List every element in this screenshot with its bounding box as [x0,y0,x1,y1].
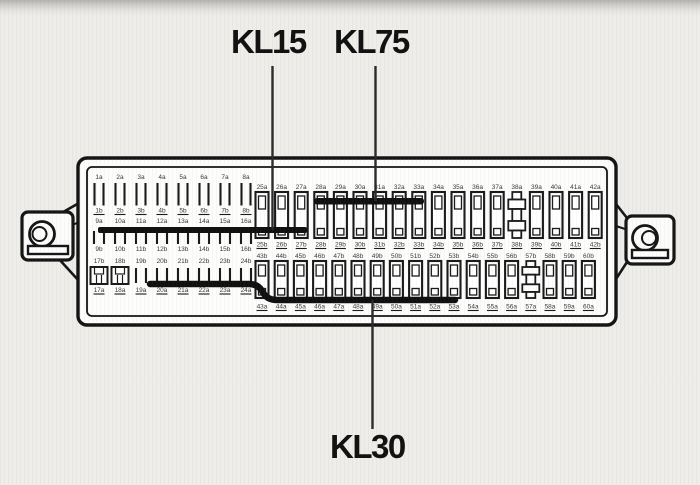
fuse-slot-label: 22a [199,287,210,294]
fuse-window [533,196,540,209]
fuse-window [335,265,342,276]
fuse-slot-label: 46b [314,253,325,260]
fuse-slot-label: 37b [492,242,503,249]
fuse-slot-label: 60a [583,304,594,311]
fuse-slot-label: 53a [449,304,460,311]
fuse-slot-label: 24a [241,287,252,294]
fuse-slot-label: 60b [583,253,594,260]
fuse-slot-label: 29b [335,242,346,249]
fuse-slot-label: 11a [136,218,147,225]
fuse-foot [566,289,573,296]
fuse-slot-label: 55b [487,253,498,260]
fuse-slot-label: 51a [410,304,421,311]
fuse-window [316,265,323,276]
fuse-slot-label: 5b [179,208,187,215]
fuse-window [592,196,599,209]
relay-socket-segment [512,192,521,200]
left-mounting-bracket [22,203,79,281]
fuse-slot-label: 43a [257,304,268,311]
fuse-slot-label: 44b [276,253,287,260]
fuse-foot [316,289,323,296]
fuse-window [435,196,442,209]
fuse-window [451,265,458,276]
fuse-window [259,265,266,276]
kl75-bus-bar [314,198,424,205]
fuse-window [455,196,462,209]
fuse-foot [572,229,579,236]
fuse-slot-label: 4b [158,208,166,215]
fuse-slot-label: 14b [199,246,210,253]
fuse-slot-label: 59a [564,304,575,311]
relay-socket-segment [508,200,525,210]
relay-socket-segment [508,221,525,231]
fuse-foot [376,229,383,236]
fuse-slot-label: 18b [115,258,126,265]
fuse-foot [474,229,481,236]
fuse-slot-label: 58a [545,304,556,311]
fuse-slot-label: 22b [199,258,210,265]
fuse-slot-label: 25a [257,184,268,191]
fuse-slot-label: 6a [200,174,208,181]
fuse-slot-label: 11b [136,246,147,253]
fuse-window [259,196,266,209]
fuse-box-diagram-page: KL15 KL75 KL30 1a2a3a4a5a6a7a8a1b2b3 [0,0,700,485]
fuse-window [508,265,515,276]
fuse-slot-label: 5a [179,174,187,181]
fuse-window [553,196,560,209]
fuse-window [278,265,285,276]
fuse-slot-label: 14a [199,218,210,225]
fuse-slot-label: 36b [472,242,483,249]
relay-socket-segment [522,284,539,292]
fuse-window [470,265,477,276]
fuse-slot-label: 27b [296,242,307,249]
fuse-slot-label: 9b [95,246,103,253]
fuse-window [412,265,419,276]
fuse-slot-label: 21b [178,258,189,265]
fuse-window [278,196,285,209]
relay-socket-segment [512,209,521,221]
fuse-slot-label: 54a [468,304,479,311]
relay-socket-segment [526,275,535,285]
fuse-slot-label: 34b [433,242,444,249]
fuse-slot-label: 15a [220,218,231,225]
fuse-slot-label: 45a [295,304,306,311]
fuse-slot-label: 58b [545,253,556,260]
fuse-slot-label: 10b [115,246,126,253]
fuse-slot-label: 48b [353,253,364,260]
fuse-foot [547,289,554,296]
fuse-window [297,265,304,276]
kl15-bus-bar [98,227,307,233]
fuse-slot-label: 32a [394,184,405,191]
fuse-foot [494,229,501,236]
fuse-slot-label: 36a [472,184,483,191]
fuse-slot-label: 33b [413,242,424,249]
fuse-foot [508,289,515,296]
fuse-foot [435,229,442,236]
fuse-slot-label: 50b [391,253,402,260]
fuse-window [494,196,501,209]
fuse-foot [470,289,477,296]
bracket-slot [632,250,668,258]
fuse-slot-label: 56b [506,253,517,260]
fuse-foot [396,229,403,236]
fuse-slot-label: 12a [157,218,168,225]
fuse-slot-label: 39b [531,242,542,249]
fuse-slot-label: 41b [570,242,581,249]
fuse-slot-label: 15b [220,246,231,253]
relay-socket-segment [526,261,535,267]
fuse-slot-label: 46a [314,304,325,311]
fuse-slot-label: 16a [241,218,252,225]
fuse-slot-label: 13a [178,218,189,225]
fuse-slot-label: 1a [95,174,103,181]
fuse-window [355,265,362,276]
terminal-label-kl30: KL30 [330,430,405,463]
fuse-slot-label: 30b [355,242,366,249]
fuse-slot-label: 37a [492,184,503,191]
fuse-box-diagram: 1a2a3a4a5a6a7a8a1b2b3b4b5b6b7b8b9a10a11a… [0,0,700,485]
terminal-label-kl75: KL75 [334,25,409,58]
fuse-slot-label: 9a [95,218,103,225]
fuse-slot-label: 44a [276,304,287,311]
fuse-slot-label: 31b [374,242,385,249]
terminal-label-kl15: KL15 [231,25,306,58]
fuse-foot [489,289,496,296]
relay-socket-segment [522,267,539,275]
fuse-slot-label: 43b [257,253,268,260]
relay-socket-segment [526,292,535,298]
fuse-slot-label: 25b [257,242,268,249]
fuse-window [374,265,381,276]
fuse-slot-label: 13b [178,246,189,253]
fuse-slot-label: 23b [220,258,231,265]
fuse-foot [412,289,419,296]
fuse-slot-label: 42b [590,242,601,249]
fuse-slot-label: 23a [220,287,231,294]
fuse-foot [451,289,458,296]
fuse-slot-label: 10a [115,218,126,225]
fuse-slot-label: 52b [429,253,440,260]
fuse-slot-label: 59b [564,253,575,260]
fuse-slot-label: 18a [115,287,126,294]
fuse-window [489,265,496,276]
fuse-slot-label: 19a [136,287,147,294]
fuse-slot-label: 28a [315,184,326,191]
fuse-slot-label: 12b [157,246,168,253]
fuse-slot-label: 53b [449,253,460,260]
fuse-window [566,265,573,276]
fuse-slot-label: 57a [525,304,536,311]
fuse-slot-label: 1b [95,208,103,215]
relay-socket-segment [512,231,521,239]
fuse-slot-label: 7a [221,174,229,181]
fuse-foot [317,229,324,236]
fuse-slot-label: 38a [511,184,522,191]
fuse-slot-label: 8b [242,208,250,215]
fuse-slot-label: 20a [157,287,168,294]
fuse-foot [533,229,540,236]
fuse-slot-label: 21a [178,287,189,294]
fuse-foot [374,289,381,296]
fuse-slot-label: 2a [116,174,124,181]
fuse-slot-label: 41a [570,184,581,191]
fuse-window [572,196,579,209]
fuse-slot-label: 17a [94,287,105,294]
fuse-foot [337,229,344,236]
fuse-slot-label: 3b [137,208,145,215]
fuse-slot-label: 51b [410,253,421,260]
fuse-slot-label: 48a [353,304,364,311]
fuse-slot-label: 38b [511,242,522,249]
right-mounting-bracket [616,204,674,279]
fuse-slot-label: 27a [296,184,307,191]
fuse-foot [393,289,400,296]
fuse-slot-label: 42a [590,184,601,191]
fuse-slot-label: 52a [429,304,440,311]
fuse-foot [415,229,422,236]
fuse-slot-label: 35b [453,242,464,249]
fuse-slot-label: 40b [551,242,562,249]
fuse-slot-label: 34a [433,184,444,191]
fuse-window [474,196,481,209]
fuse-slot-label: 20b [157,258,168,265]
fuse-slot-label: 3a [137,174,145,181]
fuse-foot [297,289,304,296]
fuse-foot [455,229,462,236]
fuse-slot-label: 32b [394,242,405,249]
fuse-slot-label: 56a [506,304,517,311]
fuse-slot-label: 24b [241,258,252,265]
fuse-foot [355,289,362,296]
fuse-foot [585,289,592,296]
fuse-slot-label: 2b [116,208,124,215]
fuse-slot-label: 8a [242,174,250,181]
fuse-slot-label: 19b [136,258,147,265]
fuse-slot-label: 57b [525,253,536,260]
fuse-slot-label: 54b [468,253,479,260]
fuse-slot-label: 47a [333,304,344,311]
fuse-slot-label: 6b [200,208,208,215]
fuse-foot [357,229,364,236]
fuse-slot-label: 47b [333,253,344,260]
fuse-foot [278,289,285,296]
fuse-slot-label: 30a [355,184,366,191]
fuse-slot-label: 29a [335,184,346,191]
fuse-slot-label: 7b [221,208,229,215]
fuse-slot-label: 55a [487,304,498,311]
fuse-window [393,265,400,276]
fuse-foot [553,229,560,236]
fuse-slot-label: 17b [94,258,105,265]
fuse-slot-label: 39a [531,184,542,191]
fuse-slot-label: 35a [453,184,464,191]
relay-socket [91,267,108,284]
fuse-slot-label: 45b [295,253,306,260]
bracket-slot [28,246,68,254]
fuse-slot-label: 26b [276,242,287,249]
fuse-window [431,265,438,276]
fuse-foot [592,229,599,236]
fuse-slot-label: 28b [315,242,326,249]
fuse-slot-label: 49b [372,253,383,260]
fuse-window [547,265,554,276]
fuse-window [298,196,305,209]
fuse-foot [335,289,342,296]
fuse-window [585,265,592,276]
fuse-slot-label: 26a [276,184,287,191]
fuse-slot-label: 50a [391,304,402,311]
fuse-slot-label: 16b [241,246,252,253]
fuse-slot-label: 33a [413,184,424,191]
relay-socket [112,267,129,284]
fuse-slot-label: 4a [158,174,166,181]
fuse-foot [431,289,438,296]
fuse-slot-label: 40a [551,184,562,191]
